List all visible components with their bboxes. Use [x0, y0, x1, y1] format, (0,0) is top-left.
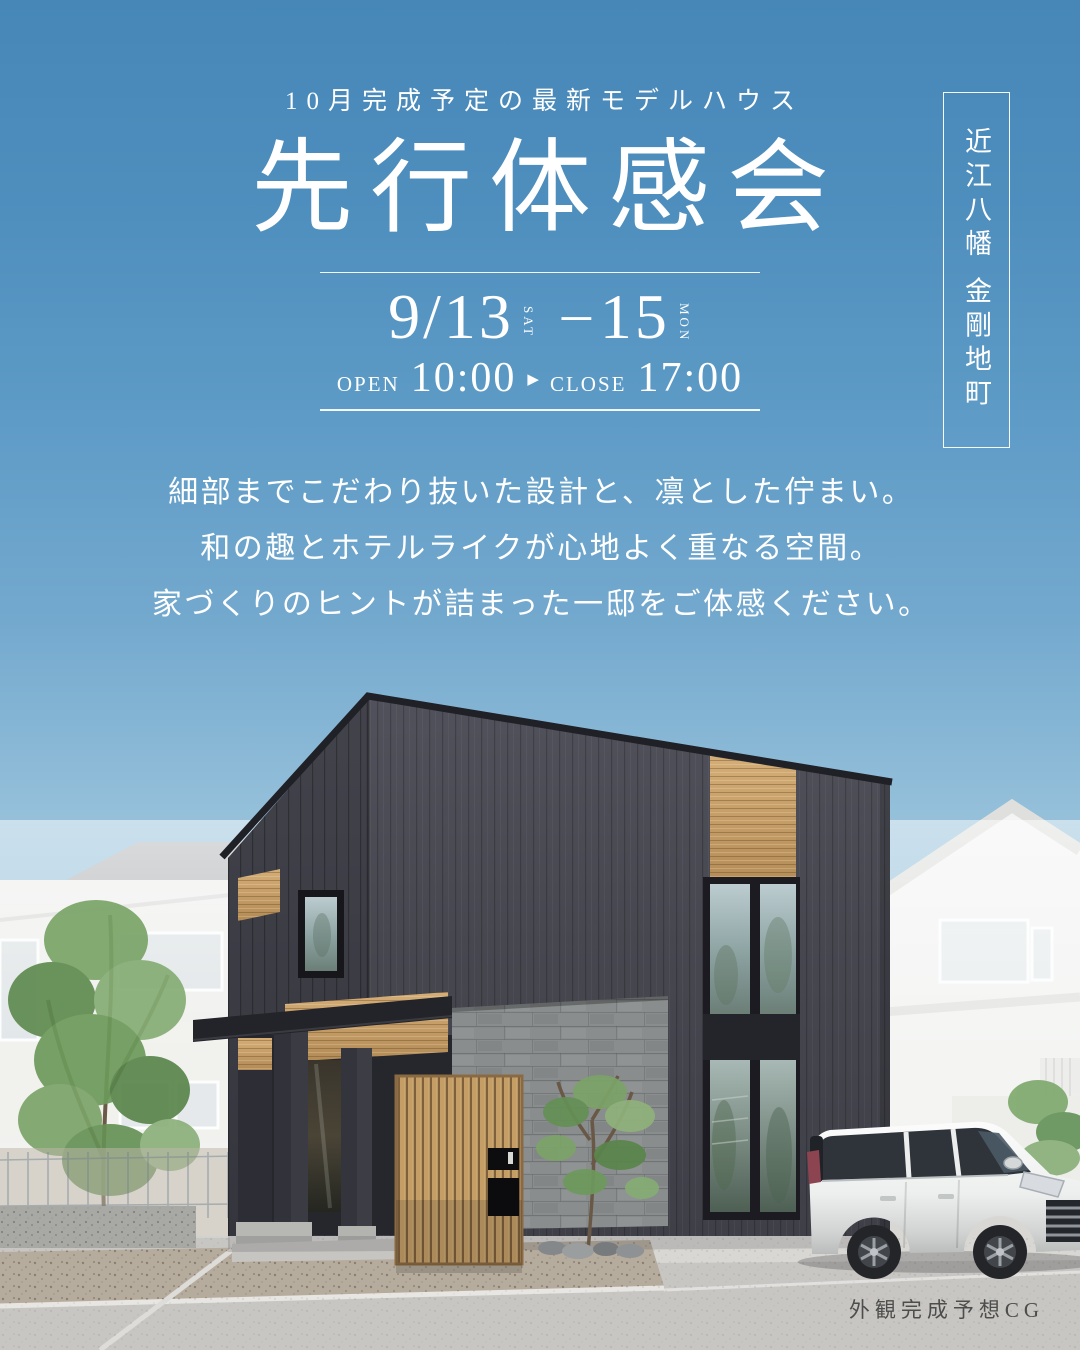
divider-bottom — [320, 409, 760, 411]
event-dates: 9/13 SAT – 15 MON — [0, 285, 1080, 349]
end-day-of-week: MON — [676, 296, 692, 348]
open-label: OPEN — [337, 372, 400, 397]
event-title: 先行体感会 — [0, 131, 1080, 248]
date-separator: – — [562, 284, 594, 342]
eyebrow-text: 10月完成予定の最新モデルハウス — [0, 86, 1080, 119]
start-day-of-week: SAT — [520, 296, 536, 348]
close-label: CLOSE — [550, 372, 627, 397]
body-line-1: 細部までこだわり抜いた設計と、凛とした佇まい。 — [0, 465, 1080, 521]
body-line-3: 家づくりのヒントが詰まった一邸をご体感ください。 — [0, 577, 1080, 633]
arrow-right-icon: ▶ — [527, 370, 539, 389]
start-date: 9/13 — [388, 285, 514, 349]
cg-caption: 外観完成予想CG — [849, 1294, 1044, 1324]
divider-top — [320, 272, 760, 274]
event-poster: 10月完成予定の最新モデルハウス 先行体感会 9/13 SAT – 15 MON… — [0, 0, 1080, 1350]
end-date: 15 — [600, 285, 670, 349]
body-copy: 細部までこだわり抜いた設計と、凛とした佇まい。 和の趣とホテルライクが心地よく重… — [0, 465, 1080, 633]
body-line-2: 和の趣とホテルライクが心地よく重なる空間。 — [0, 521, 1080, 577]
close-time: 17:00 — [637, 357, 743, 399]
hero-text-block: 10月完成予定の最新モデルハウス 先行体感会 9/13 SAT – 15 MON… — [0, 0, 1080, 633]
location-text: 近江八幡 金剛地町 — [957, 127, 996, 413]
open-time: 10:00 — [411, 357, 517, 399]
event-hours: OPEN 10:00 ▶ CLOSE 17:00 — [0, 357, 1080, 399]
location-badge: 近江八幡 金剛地町 — [943, 92, 1010, 448]
